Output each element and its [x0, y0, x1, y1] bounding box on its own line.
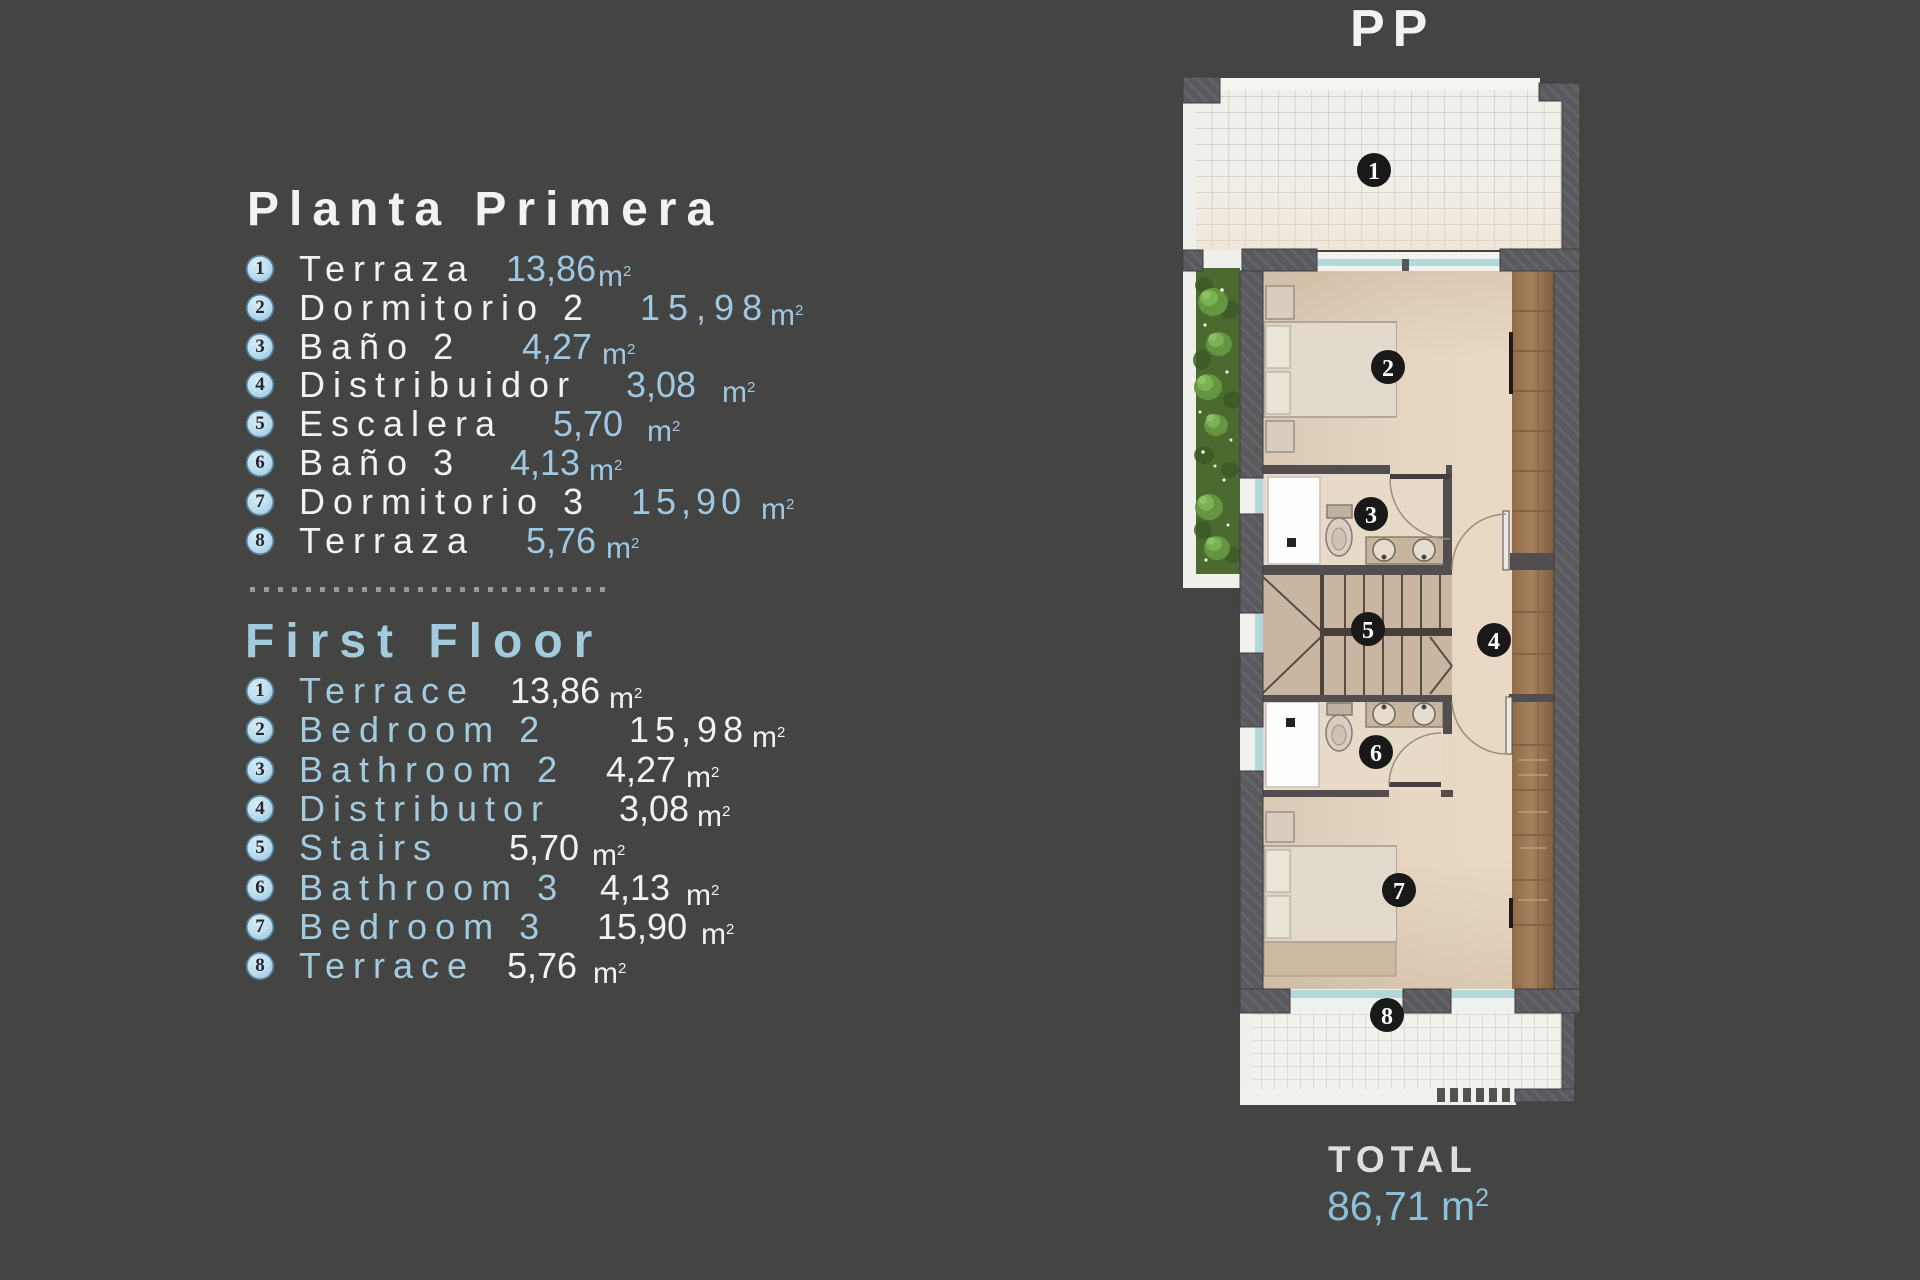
- svg-text:4: 4: [1488, 629, 1500, 655]
- svg-text:7: 7: [1393, 879, 1405, 905]
- svg-text:8: 8: [1381, 1004, 1393, 1030]
- svg-text:6: 6: [1370, 741, 1382, 767]
- svg-text:1: 1: [1368, 159, 1380, 185]
- svg-text:2: 2: [1382, 356, 1394, 382]
- svg-text:5: 5: [1362, 618, 1374, 644]
- svg-text:3: 3: [1365, 503, 1377, 529]
